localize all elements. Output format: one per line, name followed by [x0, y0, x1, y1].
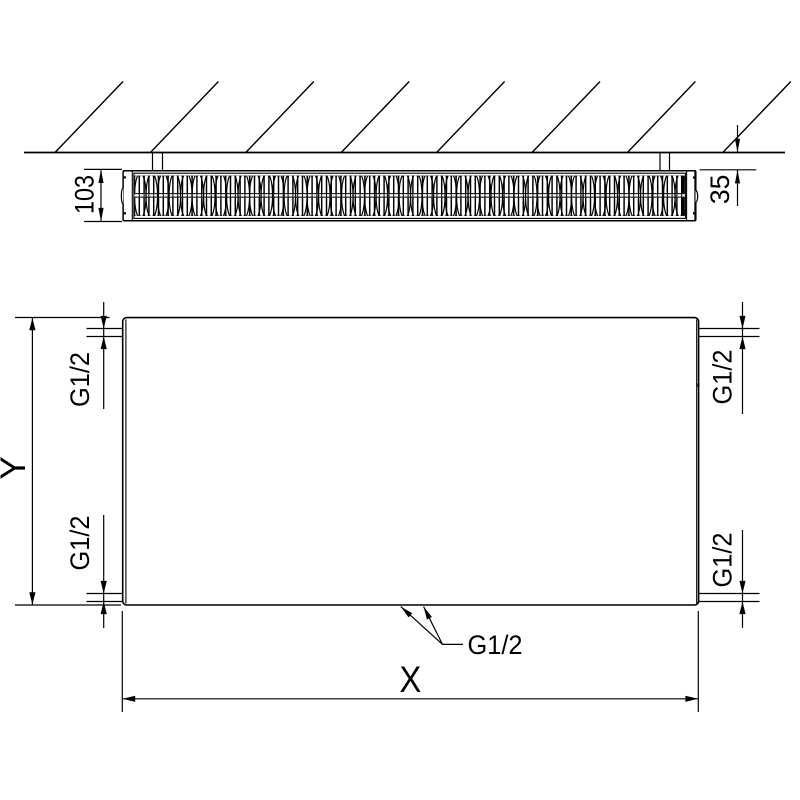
svg-text:35: 35 [705, 175, 735, 205]
svg-text:G1/2: G1/2 [65, 352, 95, 407]
svg-text:103: 103 [70, 175, 100, 214]
svg-text:X: X [399, 659, 421, 700]
svg-text:G1/2: G1/2 [708, 350, 738, 405]
svg-text:Y: Y [0, 456, 33, 479]
svg-text:G1/2: G1/2 [708, 533, 738, 588]
svg-text:G1/2: G1/2 [65, 516, 95, 571]
svg-text:G1/2: G1/2 [468, 630, 523, 660]
